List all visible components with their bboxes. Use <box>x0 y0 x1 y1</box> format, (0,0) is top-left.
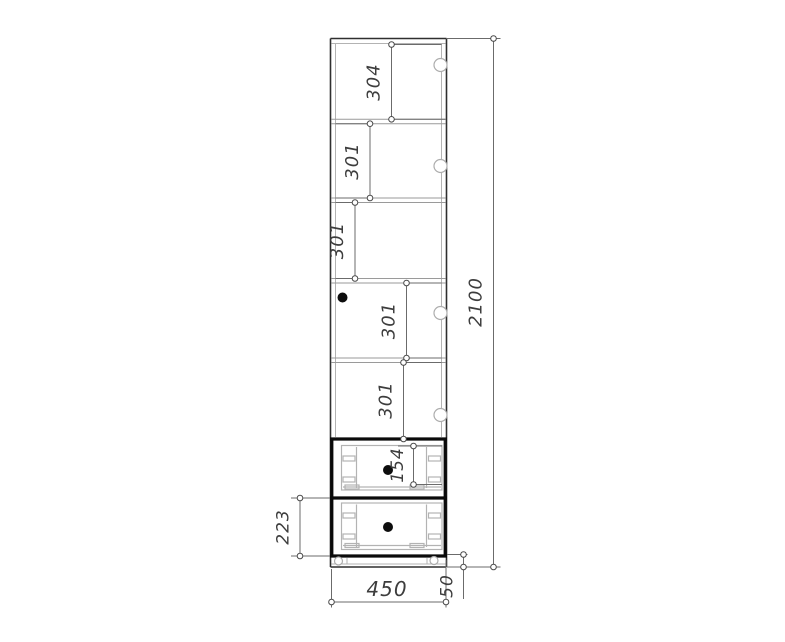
dim-label: 301 <box>376 381 397 418</box>
dim-label: 450 <box>366 577 407 601</box>
dimension-section-3: 301 <box>327 200 358 282</box>
dim-marker <box>461 552 467 558</box>
dim-marker <box>297 495 303 501</box>
drawer-2-rail-right-top <box>429 513 441 518</box>
dim-label: 223 <box>274 509 294 544</box>
dim-marker <box>404 280 410 286</box>
dim-label: 154 <box>388 447 408 482</box>
dim-marker <box>401 436 407 442</box>
dim-marker <box>329 599 335 605</box>
door-knob-icon <box>338 293 348 303</box>
dim-marker <box>297 553 303 559</box>
dimension-section-5: 301 <box>376 360 442 442</box>
drawer-1-rail-right-bottom <box>429 477 441 482</box>
door-hardware <box>338 59 448 422</box>
drawer-2 <box>342 503 443 550</box>
dim-marker <box>367 195 373 201</box>
drawer-1-rail-right-top <box>429 456 441 461</box>
dim-marker <box>461 564 467 570</box>
dimension-drawer-2: 223 <box>274 495 331 559</box>
foot-icon <box>335 557 343 565</box>
drawer-2-rail-left-top <box>343 513 355 518</box>
dim-label: 301 <box>327 222 348 259</box>
dim-label: 301 <box>342 142 363 179</box>
drawer-1-rail-left-bottom <box>343 477 355 482</box>
drawer-2-rail-left-bottom <box>343 534 355 539</box>
dimension-section-2: 301 <box>336 121 373 201</box>
dim-marker <box>401 360 407 366</box>
dim-marker <box>443 599 449 605</box>
dim-marker <box>411 482 417 488</box>
dim-marker <box>352 200 358 206</box>
hinge-icon <box>434 160 447 173</box>
hinge-icon <box>434 307 447 320</box>
dim-label: 304 <box>364 63 385 100</box>
hinge-icon <box>434 59 447 72</box>
technical-drawing-canvas: 304 301 301 301 301 <box>0 0 785 642</box>
dim-marker <box>491 36 497 42</box>
dimension-drawer-1: 154 <box>388 443 442 487</box>
drawer-2-knob-icon <box>383 522 393 532</box>
drawer-1-rail-left-top <box>343 456 355 461</box>
dimension-plinth: 50 <box>438 552 468 599</box>
dim-label: 50 <box>438 574 458 598</box>
hinge-icon <box>434 409 447 422</box>
dim-marker <box>491 564 497 570</box>
dim-label: 301 <box>379 302 400 339</box>
dimension-overall-height: 2100 <box>447 36 501 570</box>
foot-icon <box>430 557 438 565</box>
cabinet-elevation-drawing: 304 301 301 301 301 <box>0 0 785 642</box>
drawer-2-rail-right-bottom <box>429 534 441 539</box>
dim-label: 2100 <box>466 277 487 327</box>
dimension-section-top: 304 <box>364 42 446 122</box>
dim-marker <box>352 276 358 282</box>
dim-marker <box>411 443 417 449</box>
dimension-section-4: 301 <box>379 280 442 361</box>
dim-marker <box>389 117 395 123</box>
dim-marker <box>367 121 373 127</box>
dim-marker <box>389 42 395 48</box>
